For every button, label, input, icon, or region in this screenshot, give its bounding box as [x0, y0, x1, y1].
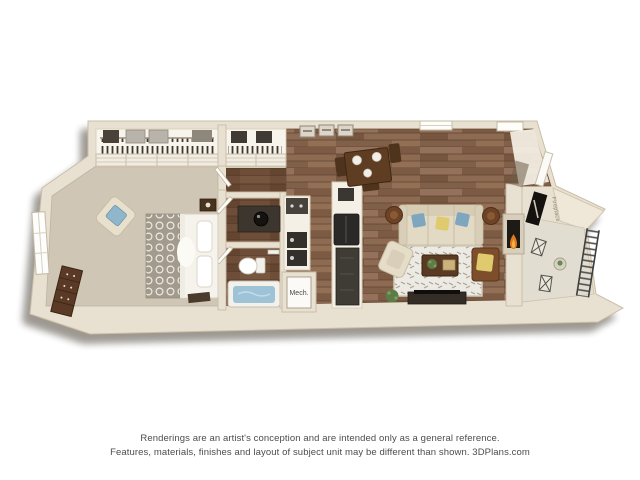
tv [414, 290, 460, 294]
bed-blanket [146, 214, 180, 298]
kitchen-left-run [284, 196, 310, 270]
dining-chair [388, 143, 401, 163]
bed [146, 214, 218, 298]
balcony-chair [539, 275, 552, 291]
nightstand [200, 199, 216, 211]
pillow-yellow [435, 216, 450, 231]
floor-plan-page: Mech. [0, 0, 640, 480]
disclaimer: Renderings are an artist's conception an… [0, 432, 640, 460]
vessel-sink [254, 212, 268, 226]
pillow-blue [411, 213, 426, 228]
disclaimer-line-1: Renderings are an artist's conception an… [0, 432, 640, 446]
sofa [399, 205, 483, 245]
accent-chair [472, 248, 499, 281]
bedroom-closet [96, 130, 218, 167]
mech-label: Mech. [289, 290, 308, 297]
pillow-yellow [476, 253, 494, 272]
floor-plan-svg: Mech. [0, 0, 640, 480]
coffee-table [422, 255, 458, 276]
pillow-blue [455, 212, 470, 227]
wall-art-frames [300, 125, 353, 137]
fireplace [503, 214, 524, 254]
towel-bar [268, 250, 279, 254]
bed-pillow [197, 221, 212, 252]
kitchen-counter [336, 248, 359, 305]
mech-closet: Mech. [282, 272, 316, 312]
hall-floor [226, 168, 286, 194]
tv-console [408, 290, 466, 304]
kitchen-right-run [332, 182, 362, 308]
table-plant [427, 259, 437, 269]
dining-table [344, 147, 392, 186]
disclaimer-line-2: Features, materials, finishes and layout… [0, 446, 640, 460]
vanity [238, 206, 280, 232]
bathtub [228, 281, 280, 307]
balcony-table [554, 258, 566, 270]
bed-pillow [197, 256, 212, 287]
floor-plant [386, 290, 399, 303]
tray [443, 260, 455, 270]
toilet [239, 258, 265, 274]
floor-plan-image: Mech. [0, 0, 640, 480]
